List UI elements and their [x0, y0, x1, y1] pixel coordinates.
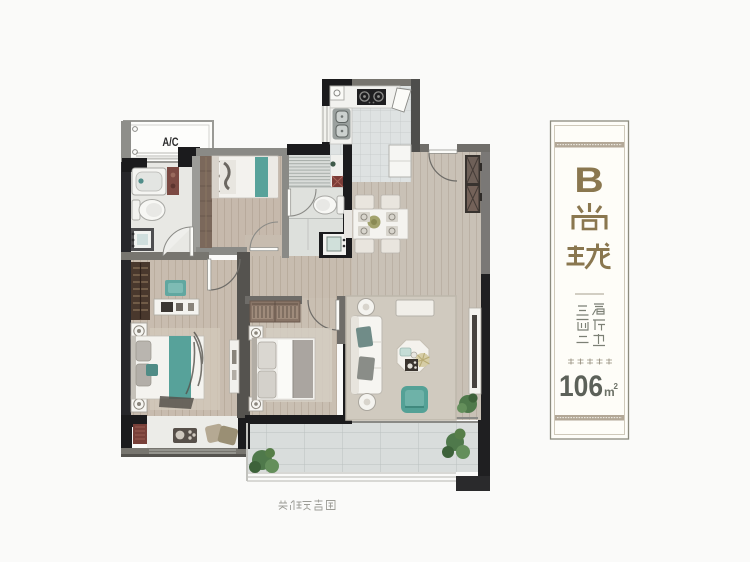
svg-text:B: B — [574, 162, 603, 201]
svg-text:2: 2 — [614, 382, 619, 391]
svg-text:106: 106 — [559, 368, 603, 402]
svg-text:A/C: A/C — [162, 136, 179, 149]
